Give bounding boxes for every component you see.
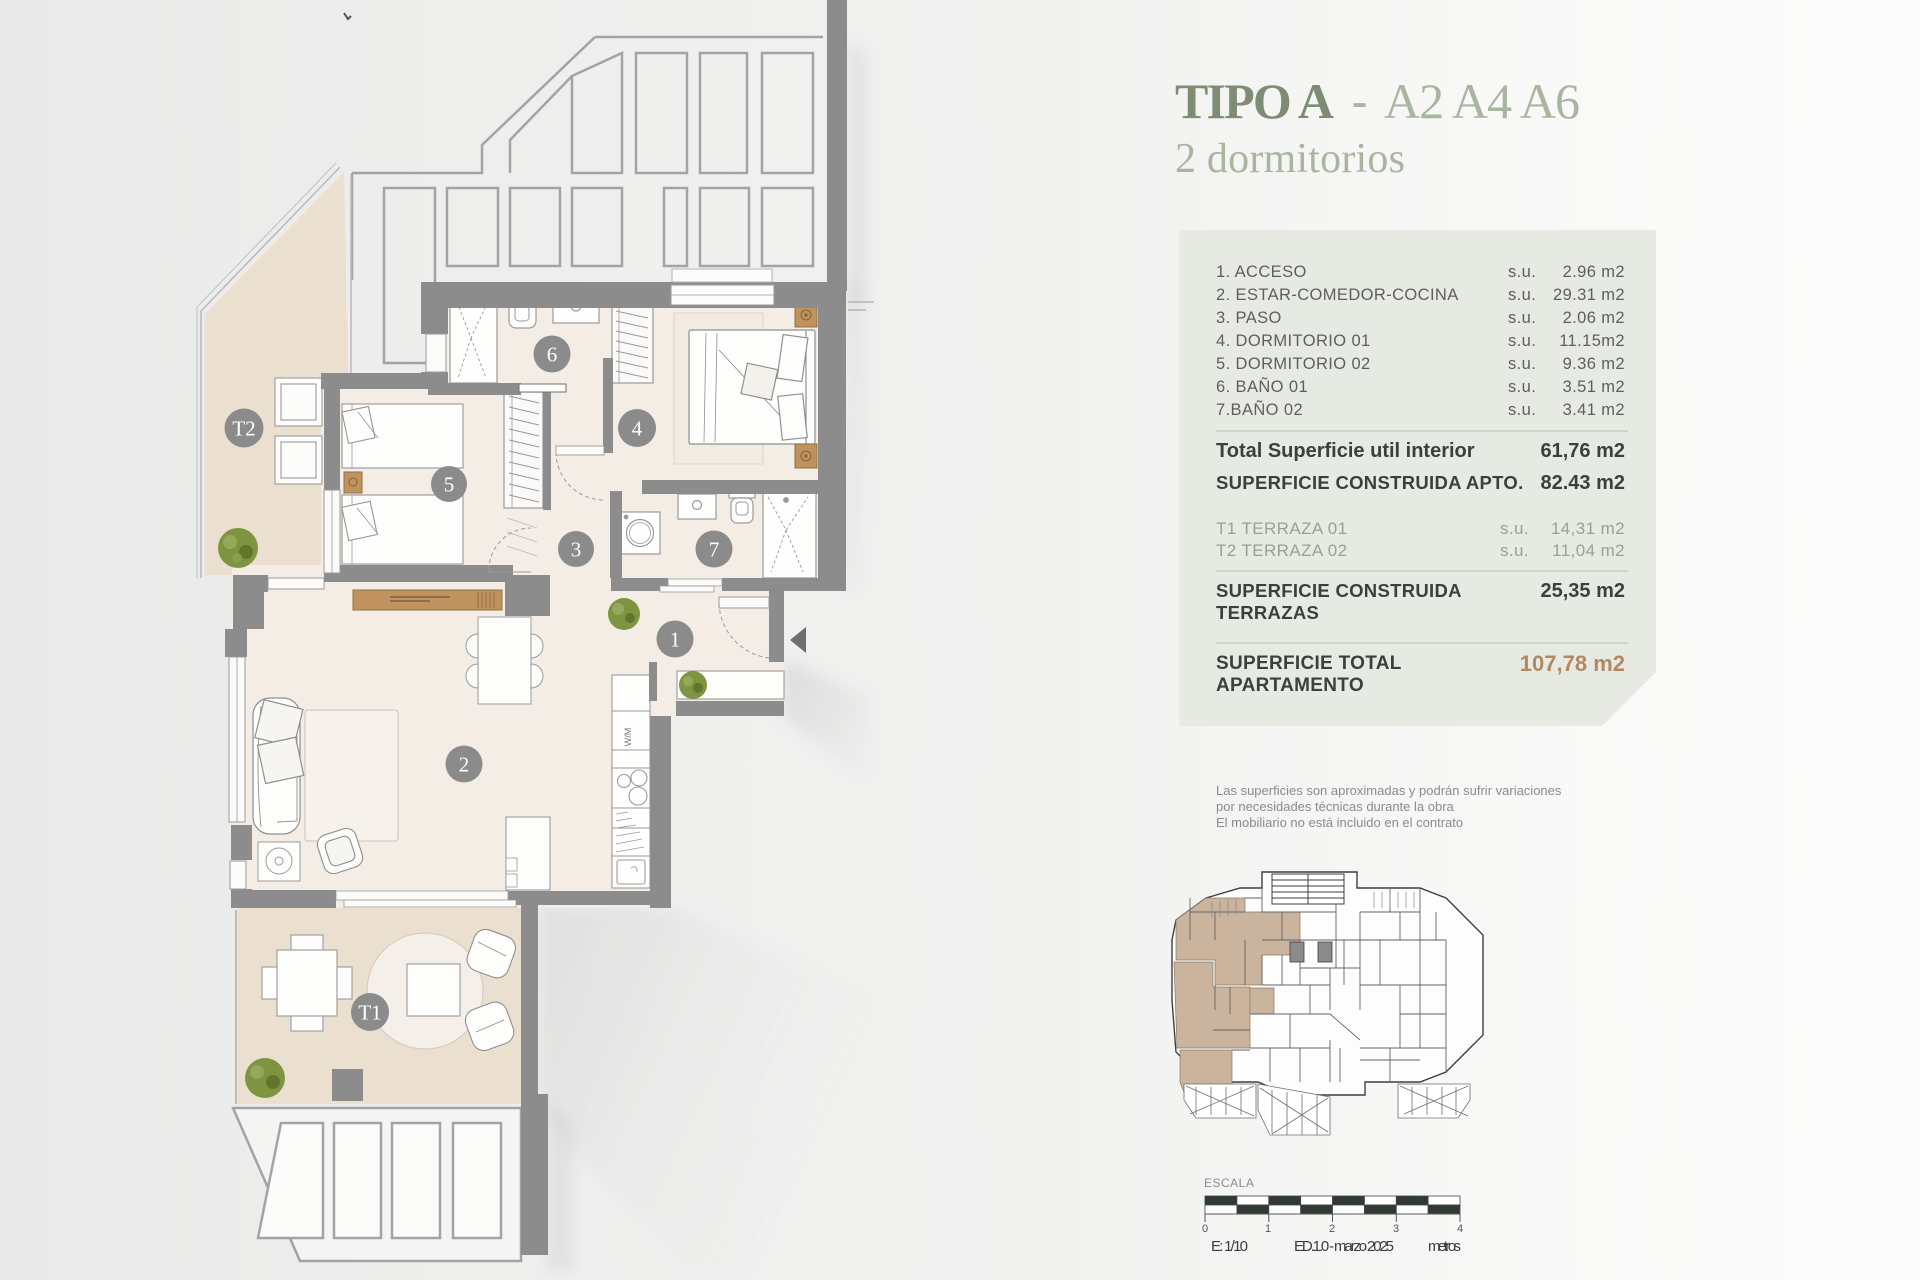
- svg-text:1: 1: [1265, 1223, 1271, 1235]
- svg-text:W/M: W/M: [623, 728, 633, 747]
- svg-text:2.06 m2: 2.06 m2: [1563, 309, 1625, 327]
- svg-text:SUPERFICIE CONSTRUIDA: SUPERFICIE CONSTRUIDA: [1216, 580, 1462, 601]
- svg-text:5. DORMITORIO 02: 5. DORMITORIO 02: [1216, 355, 1371, 373]
- svg-text:7: 7: [709, 538, 720, 562]
- svg-text:0: 0: [1202, 1223, 1208, 1235]
- svg-text:El mobiliario no está incluido: El mobiliario no está incluido en el con…: [1216, 815, 1463, 830]
- svg-text:por necesidades técnicas duran: por necesidades técnicas durante la obra: [1216, 799, 1455, 814]
- svg-text:4: 4: [632, 417, 643, 441]
- svg-text:ED.1.0 - marzo 2025: ED.1.0 - marzo 2025: [1294, 1238, 1394, 1255]
- svg-text:11.15m2: 11.15m2: [1559, 332, 1625, 350]
- svg-text:4: 4: [1457, 1223, 1463, 1235]
- svg-text:4. DORMITORIO 01: 4. DORMITORIO 01: [1216, 332, 1371, 350]
- svg-text:T2 TERRAZA 02: T2 TERRAZA 02: [1216, 541, 1348, 560]
- svg-text:6. BAÑO 01: 6. BAÑO 01: [1216, 376, 1308, 396]
- svg-text:Las superficies son aproximada: Las superficies son aproximadas y podrán…: [1216, 783, 1562, 798]
- svg-text:ESCALA: ESCALA: [1204, 1176, 1254, 1190]
- svg-text:s.u.: s.u.: [1508, 378, 1536, 396]
- svg-text:11,04 m2: 11,04 m2: [1552, 541, 1625, 560]
- svg-text:107,78 m2: 107,78 m2: [1520, 651, 1625, 676]
- svg-text:metros: metros: [1428, 1238, 1461, 1255]
- svg-text:2: 2: [459, 753, 470, 777]
- svg-text:T1: T1: [358, 1001, 381, 1025]
- svg-text:s.u.: s.u.: [1508, 263, 1536, 281]
- svg-text:6: 6: [547, 343, 558, 367]
- svg-text:9.36 m2: 9.36 m2: [1563, 355, 1625, 373]
- svg-text:s.u.: s.u.: [1508, 286, 1536, 304]
- svg-text:3.51 m2: 3.51 m2: [1563, 378, 1625, 396]
- svg-text:s.u.: s.u.: [1508, 309, 1536, 327]
- svg-text:1: 1: [670, 628, 681, 652]
- svg-text:82.43 m2: 82.43 m2: [1540, 472, 1625, 494]
- svg-text:1. ACCESO: 1. ACCESO: [1216, 263, 1307, 281]
- svg-text:3.41 m2: 3.41 m2: [1563, 401, 1625, 419]
- svg-text:7.BAÑO 02: 7.BAÑO 02: [1216, 399, 1303, 419]
- svg-text:3: 3: [571, 538, 582, 562]
- svg-text:s.u.: s.u.: [1500, 541, 1529, 560]
- svg-text:A2 A4 A6: A2 A4 A6: [1384, 73, 1580, 129]
- svg-text:61,76 m2: 61,76 m2: [1540, 440, 1625, 462]
- svg-text:s.u.: s.u.: [1508, 355, 1536, 373]
- svg-text:E: 1/10: E: 1/10: [1211, 1238, 1248, 1255]
- svg-text:2 dormitorios: 2 dormitorios: [1175, 136, 1405, 182]
- svg-text:T2: T2: [232, 417, 255, 441]
- svg-text:SUPERFICIE TOTAL: SUPERFICIE TOTAL: [1216, 653, 1402, 674]
- svg-text:25,35 m2: 25,35 m2: [1540, 580, 1625, 602]
- svg-text:2.96 m2: 2.96 m2: [1563, 263, 1625, 281]
- svg-text:14,31 m2: 14,31 m2: [1551, 519, 1625, 538]
- svg-text:APARTAMENTO: APARTAMENTO: [1216, 675, 1364, 696]
- svg-text:-: -: [1352, 75, 1367, 126]
- svg-text:3: 3: [1393, 1223, 1399, 1235]
- svg-text:T1 TERRAZA 01: T1 TERRAZA 01: [1216, 519, 1348, 538]
- svg-text:s.u.: s.u.: [1500, 519, 1529, 538]
- svg-text:3. PASO: 3. PASO: [1216, 309, 1282, 327]
- svg-text:SUPERFICIE CONSTRUIDA APTO.: SUPERFICIE CONSTRUIDA APTO.: [1216, 472, 1524, 493]
- svg-text:2. ESTAR-COMEDOR-COCINA: 2. ESTAR-COMEDOR-COCINA: [1216, 286, 1459, 304]
- svg-text:5: 5: [444, 473, 455, 497]
- svg-text:2: 2: [1329, 1223, 1335, 1235]
- svg-text:Total Superficie util interior: Total Superficie util interior: [1216, 440, 1475, 462]
- svg-text:TERRAZAS: TERRAZAS: [1216, 602, 1319, 623]
- svg-text:29.31 m2: 29.31 m2: [1553, 286, 1625, 304]
- svg-text:s.u.: s.u.: [1508, 401, 1536, 419]
- svg-text:TIPO A: TIPO A: [1175, 73, 1334, 129]
- svg-text:s.u.: s.u.: [1508, 332, 1536, 350]
